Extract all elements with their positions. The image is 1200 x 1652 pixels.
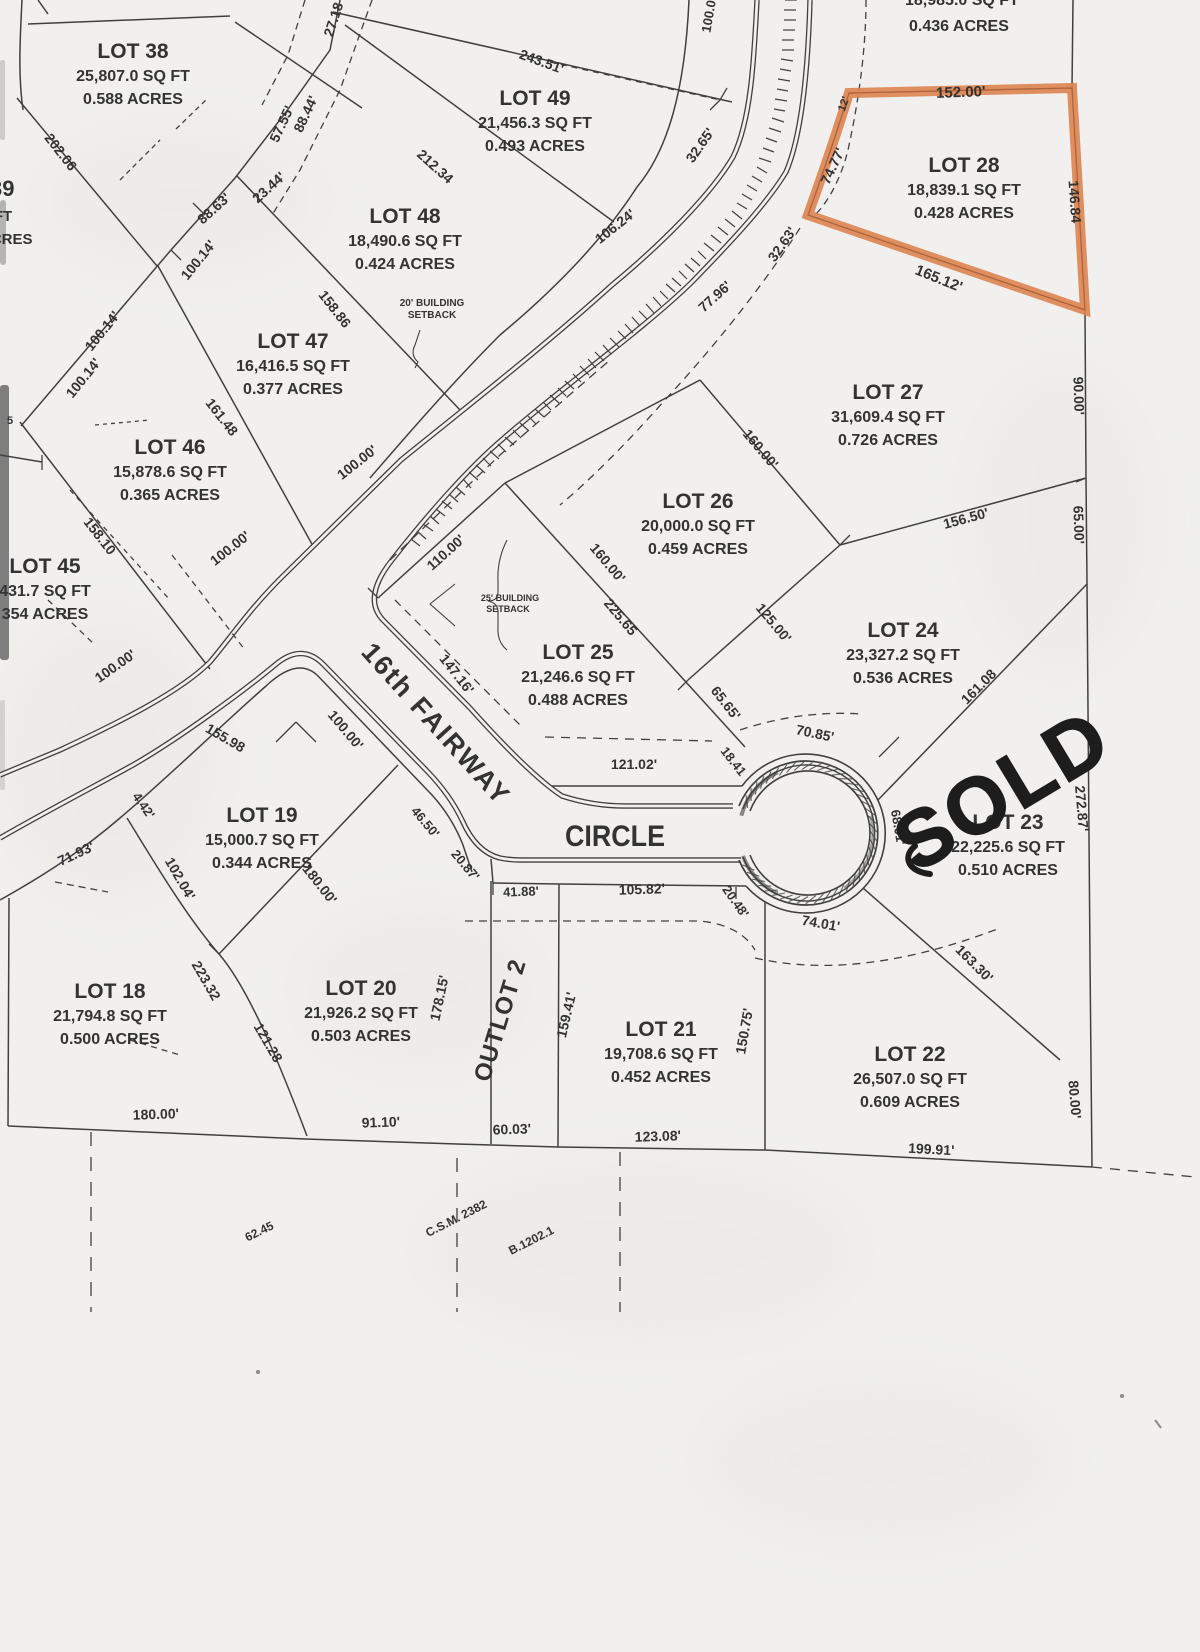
svg-text:21,926.2 SQ FT: 21,926.2 SQ FT <box>304 1005 418 1022</box>
svg-text:21,456.3 SQ FT: 21,456.3 SQ FT <box>478 115 592 132</box>
svg-text:LOT 49: LOT 49 <box>499 87 570 110</box>
svg-text:LOT 48: LOT 48 <box>369 205 441 228</box>
svg-text:60.03': 60.03' <box>492 1120 531 1137</box>
svg-text:LOT 47: LOT 47 <box>257 330 328 353</box>
svg-text:31,609.4 SQ FT: 31,609.4 SQ FT <box>831 409 945 426</box>
svg-text:CIRCLE: CIRCLE <box>565 820 665 853</box>
svg-text:LOT 22: LOT 22 <box>874 1043 945 1066</box>
svg-text:0.459 ACRES: 0.459 ACRES <box>648 541 748 558</box>
svg-text:18,839.1 SQ FT: 18,839.1 SQ FT <box>907 182 1021 199</box>
svg-text:ACRES: ACRES <box>0 231 33 248</box>
svg-text:21,246.6 SQ FT: 21,246.6 SQ FT <box>521 669 635 686</box>
svg-text:LOT 28: LOT 28 <box>928 154 1000 177</box>
svg-text:91.10': 91.10' <box>361 1113 400 1130</box>
svg-text:0.536 ACRES: 0.536 ACRES <box>853 670 953 687</box>
svg-text:152.00': 152.00' <box>936 83 986 102</box>
svg-text:0.365 ACRES: 0.365 ACRES <box>120 487 220 504</box>
svg-text:26,507.0 SQ FT: 26,507.0 SQ FT <box>853 1071 967 1088</box>
svg-text:39: 39 <box>0 176 14 201</box>
svg-text:SQ FT: SQ FT <box>0 208 12 225</box>
svg-text:121.02': 121.02' <box>611 756 657 772</box>
svg-text:LOT 46: LOT 46 <box>134 436 205 459</box>
svg-text:LOT 19: LOT 19 <box>226 804 297 827</box>
svg-text:0.428 ACRES: 0.428 ACRES <box>914 205 1014 222</box>
svg-text:80.00': 80.00' <box>1065 1080 1084 1120</box>
svg-text:SETBACK: SETBACK <box>486 604 530 614</box>
svg-text:15,000.7 SQ FT: 15,000.7 SQ FT <box>205 832 319 849</box>
svg-text:LOT 20: LOT 20 <box>325 977 396 1000</box>
svg-text:0.452 ACRES: 0.452 ACRES <box>611 1069 711 1086</box>
svg-text:23,327.2 SQ FT: 23,327.2 SQ FT <box>846 647 960 664</box>
svg-text:18,985.0 SQ FT: 18,985.0 SQ FT <box>905 0 1019 9</box>
svg-text:199.91': 199.91' <box>908 1140 955 1158</box>
svg-text:0.436 ACRES: 0.436 ACRES <box>909 18 1009 35</box>
svg-text:SETBACK: SETBACK <box>408 310 457 321</box>
svg-text:180.00': 180.00' <box>132 1105 179 1123</box>
svg-text:LOT 45: LOT 45 <box>9 555 81 578</box>
svg-text:0.510 ACRES: 0.510 ACRES <box>958 862 1058 879</box>
svg-text:LOT 18: LOT 18 <box>74 980 146 1003</box>
svg-text:123.08': 123.08' <box>634 1127 681 1145</box>
svg-text:20,000.0 SQ FT: 20,000.0 SQ FT <box>641 518 755 535</box>
svg-text:0.609 ACRES: 0.609 ACRES <box>860 1094 960 1111</box>
svg-text:0.424 ACRES: 0.424 ACRES <box>355 256 455 273</box>
svg-text:41.88': 41.88' <box>503 883 539 899</box>
svg-text:0.503 ACRES: 0.503 ACRES <box>311 1028 411 1045</box>
svg-text:90.00': 90.00' <box>1070 376 1087 415</box>
svg-text:65.00': 65.00' <box>1070 505 1087 544</box>
svg-text:0.344 ACRES: 0.344 ACRES <box>212 855 312 872</box>
svg-text:25' BUILDING: 25' BUILDING <box>481 593 539 603</box>
svg-text:LOT 26: LOT 26 <box>662 490 733 513</box>
svg-text:LOT 38: LOT 38 <box>97 40 169 63</box>
svg-text:LOT 21: LOT 21 <box>625 1018 697 1041</box>
svg-text:105.82': 105.82' <box>618 880 665 898</box>
svg-text:0.588 ACRES: 0.588 ACRES <box>83 91 183 108</box>
svg-text:354 ACRES: 354 ACRES <box>2 606 89 623</box>
svg-text:146.84: 146.84 <box>1066 180 1085 224</box>
svg-text:LOT 27: LOT 27 <box>852 381 923 404</box>
svg-text:18,490.6 SQ FT: 18,490.6 SQ FT <box>348 233 462 250</box>
svg-text:5: 5 <box>7 415 13 427</box>
svg-text:0.488 ACRES: 0.488 ACRES <box>528 692 628 709</box>
svg-text:16,416.5 SQ FT: 16,416.5 SQ FT <box>236 358 350 375</box>
svg-text:LOT 24: LOT 24 <box>867 619 939 642</box>
svg-text:0.377 ACRES: 0.377 ACRES <box>243 381 343 398</box>
svg-text:LOT 25: LOT 25 <box>542 641 614 664</box>
svg-text:0.493 ACRES: 0.493 ACRES <box>485 138 585 155</box>
svg-text:431.7 SQ FT: 431.7 SQ FT <box>0 583 91 600</box>
svg-text:15,878.6 SQ FT: 15,878.6 SQ FT <box>113 464 227 481</box>
svg-text:19,708.6 SQ FT: 19,708.6 SQ FT <box>604 1046 718 1063</box>
svg-text:25,807.0 SQ FT: 25,807.0 SQ FT <box>76 68 190 85</box>
svg-text:20' BUILDING: 20' BUILDING <box>400 298 465 309</box>
svg-text:21,794.8 SQ FT: 21,794.8 SQ FT <box>53 1008 167 1025</box>
svg-text:0.726 ACRES: 0.726 ACRES <box>838 432 938 449</box>
svg-text:0.500 ACRES: 0.500 ACRES <box>60 1031 160 1048</box>
